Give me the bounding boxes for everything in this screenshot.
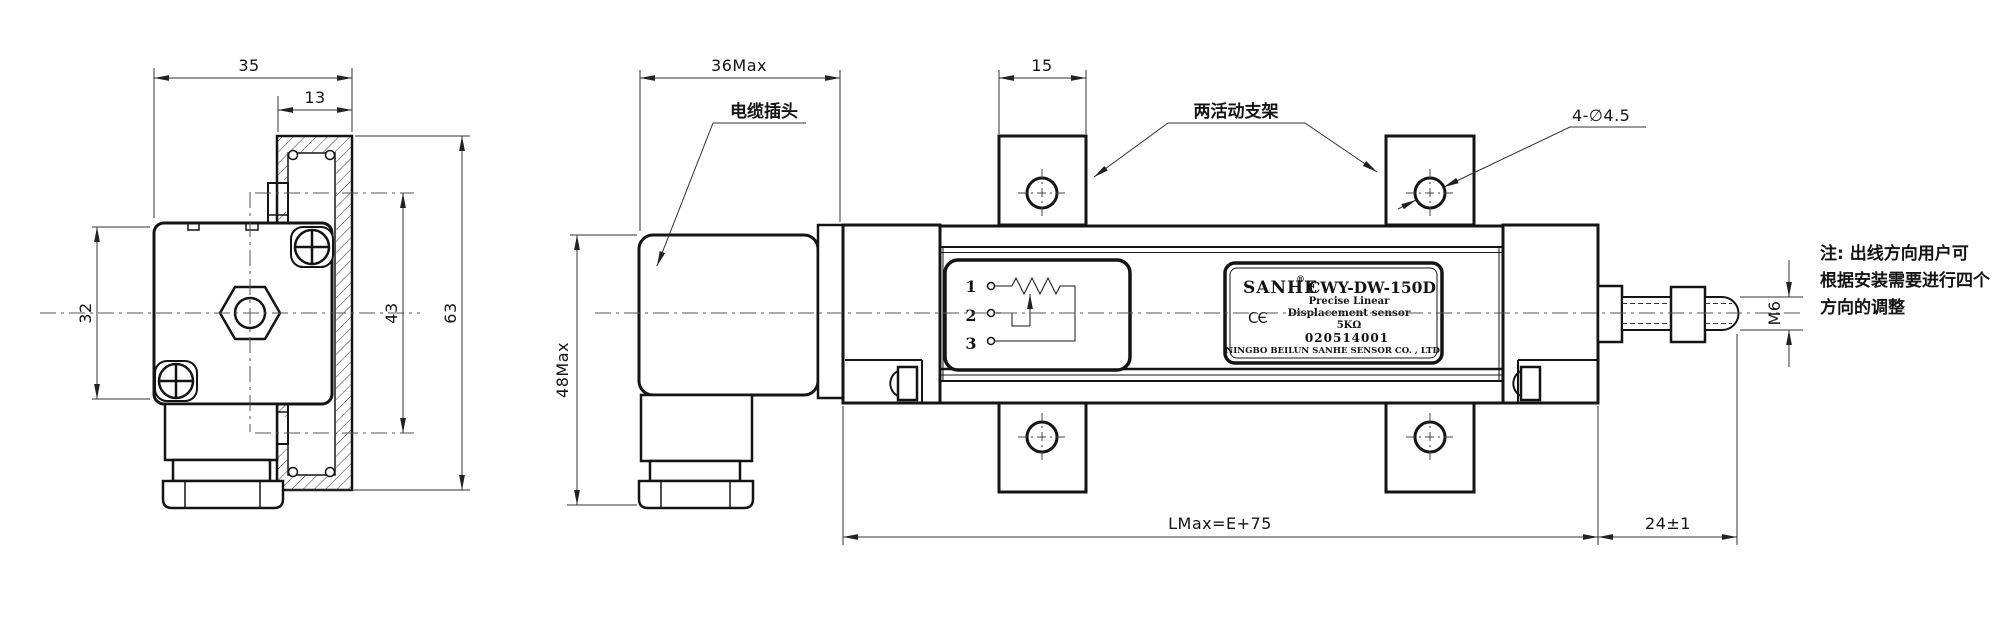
note-line3: 方向的调整: [1820, 297, 1905, 318]
nameplate-company: NINGBO BEILUN SANHE SENSOR CO. , LTD.: [1225, 346, 1442, 356]
label-movable-brackets: 两活动支架: [1194, 101, 1279, 122]
dim-hole-spacing: 43: [382, 302, 401, 323]
connector-collar: [818, 225, 843, 398]
slot-end-radius-icon: [289, 468, 298, 477]
registered-icon: ®: [1296, 275, 1305, 285]
nameplate-serial: 020514001: [1305, 331, 1389, 345]
dim-thread: M6: [1765, 301, 1784, 326]
terminal-3-label: 3: [965, 334, 976, 353]
wiring-schematic: 1 2 3: [945, 260, 1130, 370]
nameplate-model: CWY-DW-150D: [1308, 278, 1436, 297]
note-line2: 根据安装需要进行四个: [1820, 270, 1991, 291]
dim-bracket-width: 13: [304, 88, 325, 107]
dim-overall-width: 35: [238, 56, 259, 75]
dim-connector-height: 48Max: [553, 342, 572, 398]
technical-drawing-page: 35 13 32 43 63: [0, 0, 2007, 639]
piston-rod: [1598, 286, 1739, 342]
screw-icon: [155, 361, 197, 401]
mounting-bracket-lower-left: [999, 403, 1086, 492]
dim-rod-extension: 24±1: [1645, 514, 1691, 533]
end-view: 35 13 32 43 63: [40, 56, 470, 508]
drawing-note: 注: 出线方向用户可 根据安装需要进行四个 方向的调整: [1820, 243, 1991, 318]
mounting-bracket-lower-right: [1386, 403, 1474, 492]
dim-body-length: LMax=E+75: [1168, 514, 1272, 533]
mounting-bracket-upper-left: [999, 136, 1086, 225]
cable-connector-end: [163, 404, 283, 508]
nameplate-resistance: 5KΩ: [1337, 320, 1362, 331]
terminal-node-icon: [988, 338, 995, 345]
cable-connector-side: [639, 225, 843, 508]
slot-end-radius-icon: [326, 468, 335, 477]
label-cable-plug: 电缆插头: [730, 101, 798, 122]
ce-mark-icon: CЄ: [1248, 309, 1267, 327]
terminal-node-icon: [988, 283, 995, 290]
rod-nut: [1671, 287, 1705, 342]
mounting-bracket-upper-right: [1386, 136, 1474, 225]
note-line1: 注: 出线方向用户可: [1820, 243, 1969, 264]
nameplate-line1: Precise Linear: [1309, 296, 1390, 307]
slot-end-radius-icon: [326, 151, 335, 160]
terminal-2-label: 2: [965, 306, 976, 325]
dim-bracket-height: 63: [441, 302, 460, 323]
dim-bracket-foot-width: 15: [1031, 56, 1052, 75]
side-view: 1 2 3 SANHE ® CWY-DW-150D Precise Linear…: [553, 56, 1805, 545]
nameplate-brand: SANHE: [1243, 278, 1318, 298]
dim-connector-width: 36Max: [711, 56, 767, 75]
dim-body-height: 32: [76, 302, 95, 323]
slot-end-radius-icon: [289, 151, 298, 160]
displacement-sensor-drawing: 35 13 32 43 63: [0, 0, 2007, 639]
screw-icon: [291, 227, 333, 267]
terminal-1-label: 1: [965, 277, 976, 296]
dim-mounting-holes: 4-∅4.5: [1572, 106, 1630, 125]
